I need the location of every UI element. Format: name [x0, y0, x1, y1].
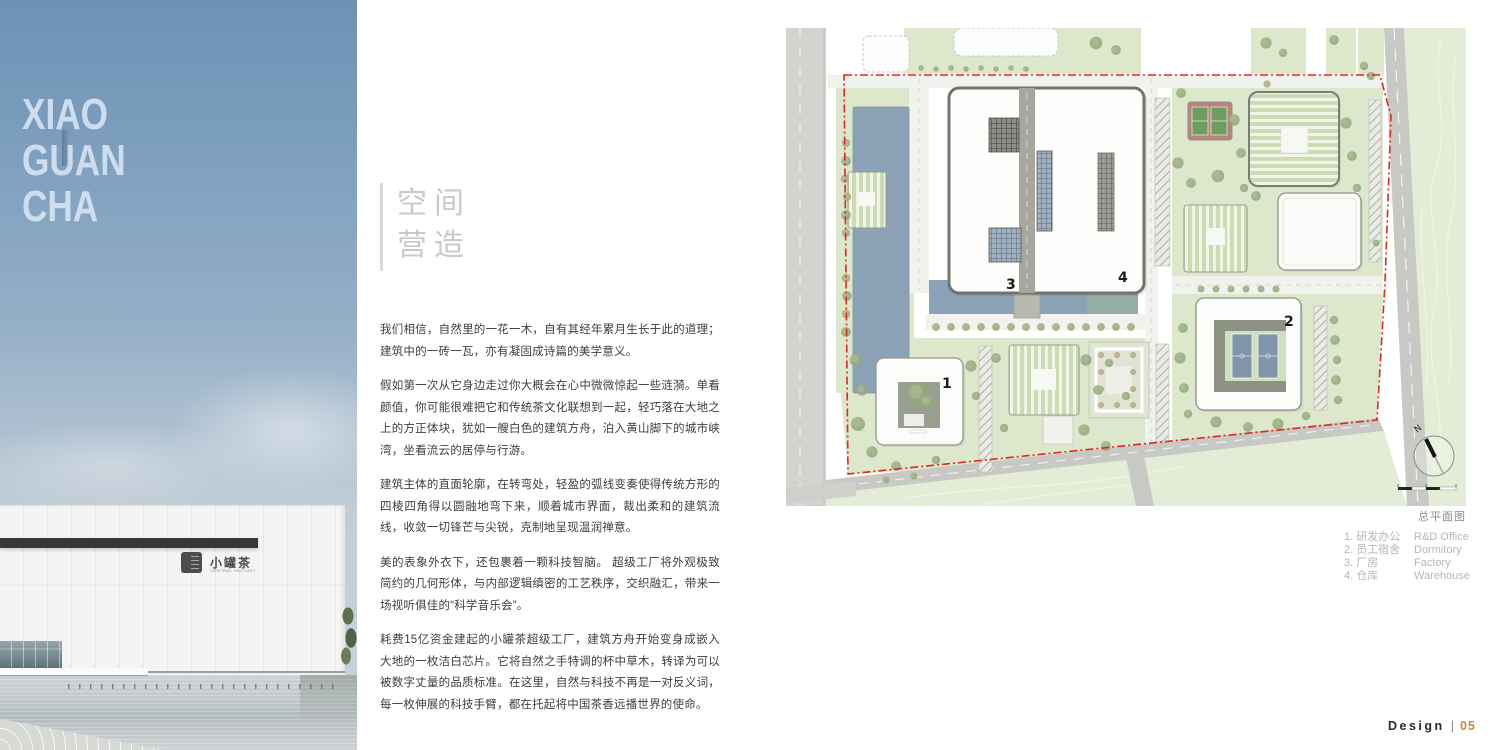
brand-wordmark: XIAO GUAN CHA: [22, 92, 126, 230]
brand-line: GUAN: [22, 138, 126, 184]
section-title: 空间 营造: [380, 183, 720, 271]
marker-building-1: 1: [942, 376, 952, 392]
site-plan-drawing: 1 2 3 4 N: [786, 28, 1466, 506]
marker-building-4: 4: [1118, 270, 1128, 286]
trees: [341, 602, 357, 668]
green-roof-building-large: [1249, 92, 1341, 188]
article-column: 空间 营造 我们相信，自然里的一花一木，自有其经年累月生长于此的道理；建筑中的一…: [380, 183, 720, 729]
footer-separator: |: [1451, 719, 1454, 733]
plan-legend: 1. 研发办公 R&D Office 2. 员工宿舍 Dormitory 3. …: [1344, 531, 1474, 583]
page: XIAO GUAN CHA 小罐茶 CENTRAL FACTORY 空间: [0, 0, 1500, 750]
legend-cn-label: 3. 厂房: [1344, 557, 1414, 570]
paragraph: 美的表象外衣下，还包裹着一颗科技智脑。 超级工厂将外观极致简约的几何形体，与内部…: [380, 553, 720, 618]
green-roof-building-pond: [848, 172, 886, 228]
body-text: 我们相信，自然里的一花一木，自有其经年累月生长于此的道理；建筑中的一砖一瓦，亦有…: [380, 320, 720, 716]
page-number: 05: [1460, 719, 1476, 733]
rnd-office-building: [876, 358, 965, 447]
fountain-jets: [68, 684, 338, 689]
tennis-courts: [1188, 102, 1232, 140]
entrance-shadow: [62, 130, 70, 166]
legend-row: 3. 厂房 Factory: [1344, 557, 1474, 570]
paragraph: 建筑主体的直面轮廓，在转弯处，轻盈的弧线变奏使得传统方形的四棱四角得以圆融地弯下…: [380, 475, 720, 540]
plan-caption: 总平面图: [1346, 508, 1466, 524]
entrance-glazing: [0, 641, 62, 669]
legend-row: 1. 研发办公 R&D Office: [1344, 531, 1474, 544]
sign-english-text: CENTRAL FACTORY: [210, 568, 256, 573]
brand-line: CHA: [22, 184, 126, 230]
west-road: [786, 28, 826, 506]
paragraph: 我们相信，自然里的一花一木，自有其经年累月生长于此的道理；建筑中的一砖一瓦，亦有…: [380, 320, 720, 363]
legend-cn-label: 4. 仓库: [1344, 570, 1414, 583]
hero-photo: XIAO GUAN CHA 小罐茶 CENTRAL FACTORY: [0, 0, 357, 750]
brand-logo-icon: [181, 552, 202, 573]
bench-strip: [0, 668, 148, 675]
legend-en-label: Warehouse: [1414, 570, 1474, 583]
paragraph: 假如第一次从它身边走过你大概会在心中微微惊起一些涟漪。单看颜值，你可能很难把它和…: [380, 376, 720, 462]
pond: [853, 107, 909, 393]
legend-en-label: Factory: [1414, 557, 1474, 570]
legend-en-label: R&D Office: [1414, 531, 1474, 544]
white-building-northeast: [1278, 193, 1363, 272]
north-blocks: [863, 28, 1384, 75]
legend-row: 4. 仓库 Warehouse: [1344, 570, 1474, 583]
paragraph: 耗费15亿资金建起的小罐茶超级工厂，建筑方舟开始变身成嵌入大地的一枚洁白芯片。它…: [380, 630, 720, 716]
marker-building-2: 2: [1284, 314, 1294, 330]
pool-edge: [148, 671, 345, 673]
window-slot: [0, 538, 258, 548]
legend-cn-label: 1. 研发办公: [1344, 531, 1414, 544]
site-plan: 1 2 3 4 N: [786, 28, 1466, 506]
factory-building-photo: 小罐茶 CENTRAL FACTORY: [0, 505, 345, 675]
legend-en-label: Dormitory: [1414, 544, 1474, 557]
factory-building: [949, 88, 1147, 296]
building-sign: 小罐茶 CENTRAL FACTORY: [181, 552, 311, 584]
green-roof-building-mid: [1184, 205, 1247, 272]
footer-section-label: Design: [1388, 719, 1445, 733]
legend-row: 2. 员工宿舍 Dormitory: [1344, 544, 1474, 557]
title-line: 营造: [397, 225, 471, 267]
title-line: 空间: [397, 183, 471, 225]
marker-building-3: 3: [1006, 277, 1016, 293]
page-footer: Design | 05: [1388, 719, 1476, 733]
title-accent-bar: [380, 183, 383, 271]
legend-cn-label: 2. 员工宿舍: [1344, 544, 1414, 557]
brand-line: XIAO: [22, 92, 126, 138]
tree-reflection: [300, 675, 357, 723]
